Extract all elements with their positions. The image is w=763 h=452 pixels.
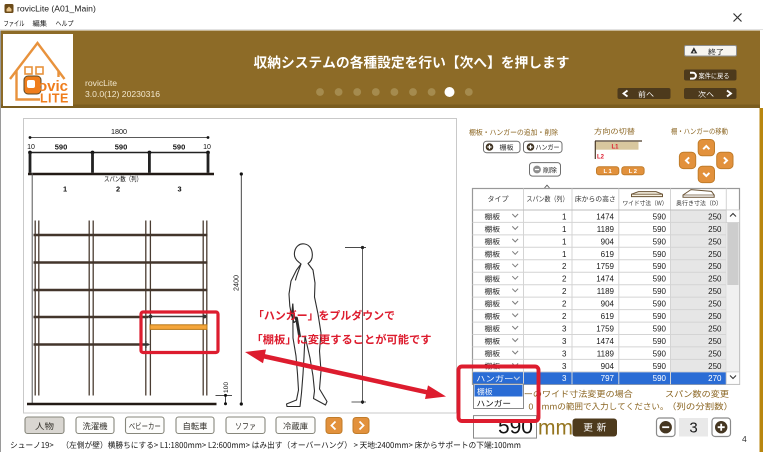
svg-text:1759: 1759 — [596, 262, 614, 271]
svg-text:590: 590 — [653, 250, 667, 259]
svg-text:1: 1 — [562, 237, 567, 246]
svg-text:3: 3 — [562, 349, 567, 358]
svg-text:590: 590 — [653, 312, 667, 321]
svg-text:619: 619 — [601, 250, 615, 259]
svg-text:270: 270 — [708, 374, 722, 383]
svg-text:2: 2 — [562, 262, 567, 271]
svg-text:590: 590 — [653, 324, 667, 333]
svg-text:1800: 1800 — [111, 127, 127, 136]
svg-text:3: 3 — [562, 324, 567, 333]
svg-text:4: 4 — [742, 434, 747, 444]
svg-text:250: 250 — [708, 362, 722, 371]
svg-text:1474: 1474 — [596, 275, 614, 284]
svg-text:250: 250 — [708, 312, 722, 321]
svg-text:1474: 1474 — [596, 337, 614, 346]
svg-text:3: 3 — [562, 362, 567, 371]
svg-text:590: 590 — [498, 416, 533, 439]
svg-text:1: 1 — [562, 250, 567, 259]
svg-text:590: 590 — [653, 262, 667, 271]
svg-text:L 1: L 1 — [603, 169, 612, 175]
svg-text:590: 590 — [653, 337, 667, 346]
svg-text:590: 590 — [653, 349, 667, 358]
svg-text:LITE: LITE — [40, 92, 69, 106]
svg-text:250: 250 — [708, 275, 722, 284]
svg-text:0: 0 — [529, 402, 534, 412]
svg-text:3: 3 — [689, 420, 697, 437]
svg-text:1189: 1189 — [597, 225, 615, 234]
svg-text:rovicLite (A01_Main): rovicLite (A01_Main) — [17, 4, 96, 14]
svg-text:250: 250 — [708, 250, 722, 259]
svg-text:2400: 2400 — [232, 275, 241, 291]
svg-text:250: 250 — [708, 225, 722, 234]
svg-text:2: 2 — [562, 287, 567, 296]
svg-text:590: 590 — [653, 287, 667, 296]
svg-text:2: 2 — [562, 275, 567, 284]
svg-text:590: 590 — [653, 212, 667, 221]
svg-text:1189: 1189 — [597, 287, 615, 296]
svg-text:10: 10 — [27, 144, 35, 151]
svg-text:1: 1 — [63, 185, 67, 194]
svg-text:250: 250 — [708, 349, 722, 358]
svg-text:590: 590 — [173, 142, 186, 151]
svg-text:3: 3 — [177, 185, 181, 194]
svg-text:590: 590 — [653, 362, 667, 371]
svg-text:1189: 1189 — [597, 349, 615, 358]
svg-text:904: 904 — [601, 362, 615, 371]
svg-text:250: 250 — [708, 324, 722, 333]
svg-text:590: 590 — [653, 225, 667, 234]
svg-text:L2: L2 — [597, 155, 605, 161]
svg-text:250: 250 — [708, 212, 722, 221]
svg-text:mm: mm — [538, 417, 573, 440]
svg-text:3.0.0(12) 20230316: 3.0.0(12) 20230316 — [85, 89, 160, 99]
svg-text:2: 2 — [562, 300, 567, 309]
svg-text:2: 2 — [116, 185, 120, 194]
svg-text:3: 3 — [562, 337, 567, 346]
svg-text:250: 250 — [708, 287, 722, 296]
svg-text:904: 904 — [601, 300, 615, 309]
svg-text:619: 619 — [601, 312, 615, 321]
svg-text:1: 1 — [562, 212, 567, 221]
svg-text:rovicLite: rovicLite — [85, 78, 117, 88]
svg-text:L 2: L 2 — [629, 169, 637, 175]
svg-text:590: 590 — [653, 237, 667, 246]
svg-text:1474: 1474 — [596, 212, 614, 221]
svg-text:904: 904 — [601, 237, 615, 246]
svg-text:250: 250 — [708, 237, 722, 246]
svg-text:1: 1 — [562, 225, 567, 234]
svg-text:590: 590 — [653, 300, 667, 309]
svg-text:590: 590 — [653, 374, 667, 383]
svg-text:590: 590 — [653, 275, 667, 284]
svg-text:100: 100 — [223, 382, 230, 393]
svg-text:3: 3 — [562, 374, 567, 383]
svg-text:797: 797 — [601, 374, 615, 383]
svg-text:250: 250 — [708, 262, 722, 271]
svg-text:590: 590 — [55, 142, 68, 151]
svg-text:1759: 1759 — [596, 324, 614, 333]
svg-text:590: 590 — [115, 142, 128, 151]
svg-text:L1: L1 — [612, 144, 620, 150]
svg-text:250: 250 — [708, 337, 722, 346]
svg-text:250: 250 — [708, 300, 722, 309]
svg-text:2: 2 — [562, 312, 567, 321]
svg-text:10: 10 — [203, 144, 211, 151]
